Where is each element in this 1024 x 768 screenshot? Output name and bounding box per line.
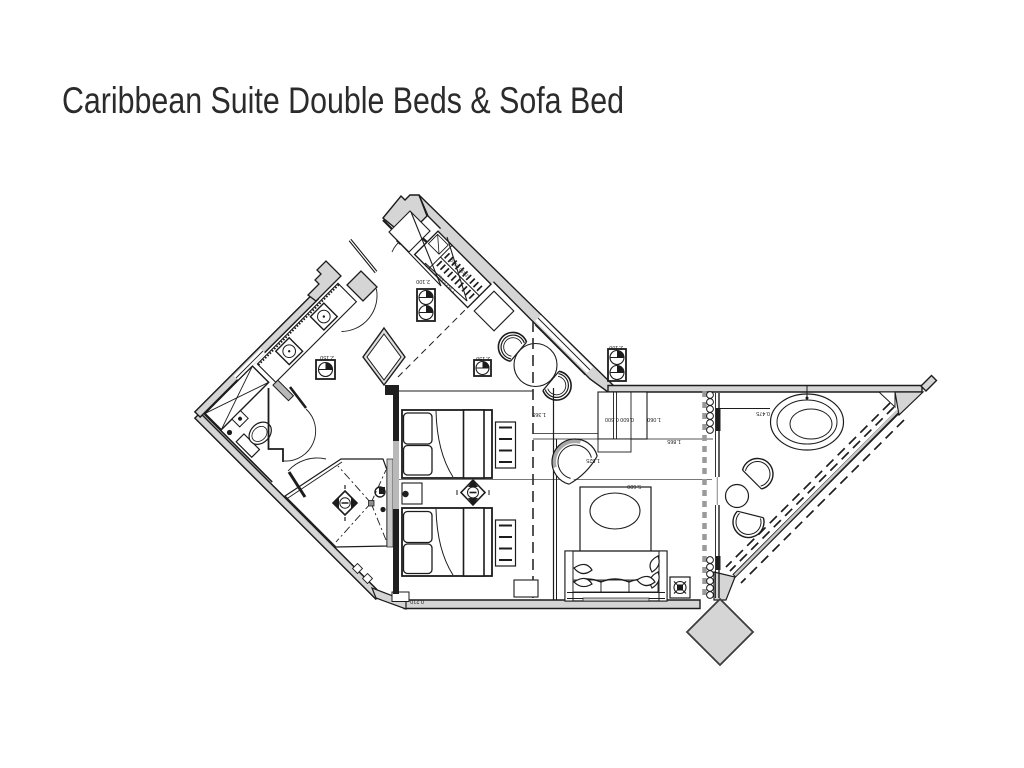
svg-text:1.525: 1.525	[586, 457, 600, 463]
svg-text:2.150: 2.150	[320, 354, 334, 360]
svg-text:5.600: 5.600	[627, 483, 641, 489]
svg-text:Caribbean Suite Double Beds &: Caribbean Suite Double Beds & Sofa Bed	[62, 80, 624, 121]
svg-text:1.060: 1.060	[647, 416, 661, 422]
svg-text:0.600 0.600: 0.600 0.600	[605, 416, 634, 422]
svg-text:2.150: 2.150	[476, 355, 490, 361]
svg-text:1.365: 1.365	[532, 411, 546, 417]
svg-text:0.475: 0.475	[756, 410, 770, 416]
svg-text:2.100: 2.100	[416, 278, 430, 284]
svg-text:2.100: 2.100	[609, 344, 623, 350]
svg-text:1.865: 1.865	[667, 438, 681, 444]
svg-text:0.210: 0.210	[410, 598, 424, 604]
